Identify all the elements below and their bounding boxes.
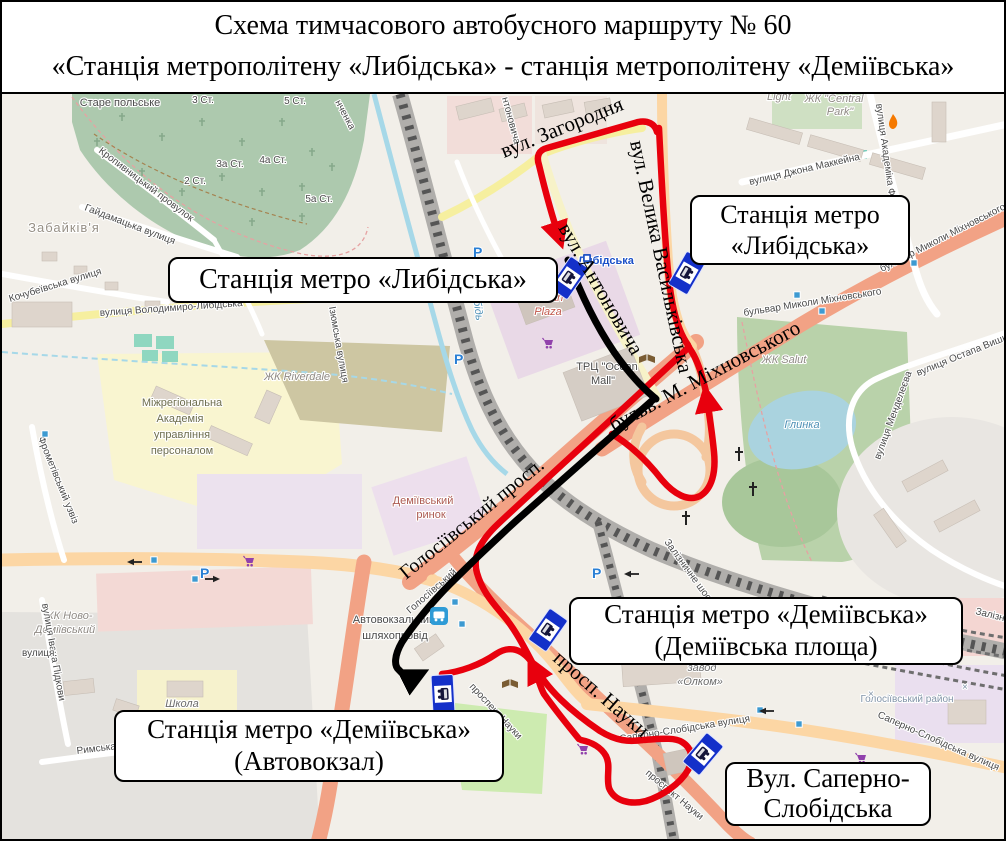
map-label: Глинка xyxy=(784,419,819,431)
scheme-title-line1: Схема тимчасового автобусного маршруту №… xyxy=(215,6,792,47)
map-label: вулиця Остапа Вишні xyxy=(915,331,1004,379)
map-label: × xyxy=(962,682,968,693)
callout-text: (Автовокзал) xyxy=(116,746,502,778)
parking-icon: P xyxy=(454,351,463,367)
callout-text: Слобідська xyxy=(727,794,929,824)
map-label: Деміївський xyxy=(393,495,454,507)
callout-text: (Деміївська площа) xyxy=(571,631,961,663)
map-label: ринок xyxy=(416,509,445,521)
transit-stop-icon xyxy=(452,599,458,605)
map-label: Старе польське xyxy=(80,97,161,109)
transit-stop-icon xyxy=(192,576,198,582)
callout-text: Вул. Саперно- xyxy=(727,764,929,794)
map-canvas: Старе польське 3 Ст. 5 Ст. 2 Ст. 3а Ст. … xyxy=(2,94,1004,841)
map-label: Голосіївський район xyxy=(860,694,953,705)
map-label: шляхопровід xyxy=(362,630,428,642)
bus-stop-sign-avtovokzal xyxy=(431,674,455,713)
book-icon xyxy=(502,679,518,688)
parking-icon: P xyxy=(592,565,601,581)
map-label: Школа xyxy=(165,698,199,710)
callout-text: Станція метро «Деміївська» xyxy=(116,714,502,746)
red-route-to-terminus xyxy=(442,649,530,674)
map-label: Plaza xyxy=(534,306,562,318)
map-label: × xyxy=(868,689,874,700)
map-label: Park" xyxy=(827,106,855,118)
transit-stop-icon xyxy=(794,292,800,298)
map-label: Деміївський xyxy=(33,624,95,636)
map-label: 3 Ст. xyxy=(192,95,214,106)
transit-stop-icon xyxy=(796,721,802,727)
map-label: Mall" xyxy=(591,375,615,387)
scheme-title: Схема тимчасового автобусного маршруту №… xyxy=(2,2,1004,94)
transit-stop-icon xyxy=(151,557,157,563)
map-label: ЖК Riverdale xyxy=(263,371,330,383)
transit-stop-icon xyxy=(819,308,825,314)
map-label: управління xyxy=(154,429,210,441)
callout-lybidska-right: Станція метро «Либідська» xyxy=(690,195,910,265)
callout-text: Станція метро «Деміївська» xyxy=(571,599,961,631)
fire-icon xyxy=(889,114,897,129)
map-label: 4а Ст. xyxy=(259,155,286,166)
callout-saperno: Вул. Саперно- Слобідська xyxy=(725,762,931,826)
map-label: 5а Ст. xyxy=(305,194,332,205)
bus-station-icon xyxy=(430,607,448,625)
map-label: «Олком» xyxy=(677,676,723,688)
map-label: персоналом xyxy=(151,445,213,457)
map-label: Light xyxy=(767,94,792,103)
callout-demiivska-bus: Станція метро «Деміївська» (Автовокзал) xyxy=(114,710,504,782)
scheme-title-line2: «Станція метрополітену «Либідська» - ста… xyxy=(52,47,955,88)
map-label: Міжрегіональна xyxy=(142,397,223,409)
callout-lybidska-left: Станція метро «Либідська» xyxy=(168,257,558,303)
callout-text: «Либідська» xyxy=(692,230,908,261)
map-label: вулиця xyxy=(22,648,54,659)
map-label: Кочубеївська вулиця xyxy=(7,265,103,305)
map-label: 2 Ст. xyxy=(184,176,206,187)
map-label: 5 Ст. xyxy=(284,96,306,107)
callout-text: Станція метро «Либідська» xyxy=(170,264,556,296)
transit-stop-icon xyxy=(42,431,48,437)
transit-stop-icon xyxy=(459,621,465,627)
oneway-arrow-icon xyxy=(624,571,639,577)
map-label: Забайків'я xyxy=(28,220,100,235)
map-label: 3а Ст. xyxy=(216,159,243,170)
map-label: вулиця Джона Маккейна xyxy=(748,152,861,188)
map-label: ЖК "Central xyxy=(804,94,865,105)
transit-stop-icon xyxy=(911,260,917,266)
callout-demiivska-square: Станція метро «Деміївська» (Деміївська п… xyxy=(569,597,963,665)
book-icon xyxy=(639,354,655,363)
shopping-cart-icon xyxy=(578,744,589,755)
route-scheme-page: Схема тимчасового автобусного маршруту №… xyxy=(0,0,1006,841)
map-label: Академія xyxy=(156,413,203,425)
callout-text: Станція метро xyxy=(692,199,908,230)
